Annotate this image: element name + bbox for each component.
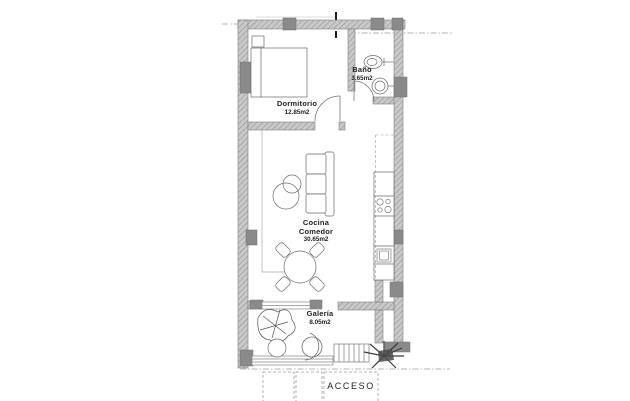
- dining-set: [275, 242, 326, 293]
- entry-steps: [334, 344, 369, 362]
- bano-name: Baño: [351, 66, 372, 75]
- bathroom-sink: [372, 78, 394, 94]
- galeria-label: Galería 8.05m2: [307, 310, 334, 326]
- bano-label: Baño 3.65m2: [351, 66, 372, 82]
- bathroom-door: [354, 81, 374, 101]
- dormitorio-label: Dormitorio 12.85m2: [277, 100, 317, 116]
- kitchen-counter: [374, 172, 394, 280]
- cocina-comedor-label: Cocina Comedor 30.65m2: [299, 219, 333, 243]
- acceso-text: ACCESO: [327, 381, 375, 391]
- floor-plan: Dormitorio 12.85m2 Baño 3.65m2 Cocina Co…: [0, 0, 630, 401]
- galeria-stool: [268, 339, 286, 357]
- bedroom-door: [315, 96, 340, 121]
- cocina-comedor-area: 30.65m2: [299, 236, 333, 243]
- kitchen-sink: [377, 249, 391, 262]
- armchair: [273, 175, 301, 209]
- floor-plan-drawing: [0, 0, 630, 401]
- sofa: [306, 152, 334, 216]
- comedor-name: Comedor: [299, 227, 333, 236]
- galeria-area: 8.05m2: [307, 319, 334, 326]
- acceso-label: ACCESO: [327, 381, 375, 391]
- bed: [251, 36, 307, 97]
- dormitorio-name: Dormitorio: [277, 100, 317, 109]
- galeria-inner-window: [262, 302, 310, 309]
- dormitorio-area: 12.85m2: [277, 109, 317, 116]
- bano-area: 3.65m2: [351, 75, 372, 82]
- galeria-plant: [258, 310, 295, 342]
- galeria-front-window: [252, 356, 333, 365]
- galeria-name: Galería: [307, 310, 334, 319]
